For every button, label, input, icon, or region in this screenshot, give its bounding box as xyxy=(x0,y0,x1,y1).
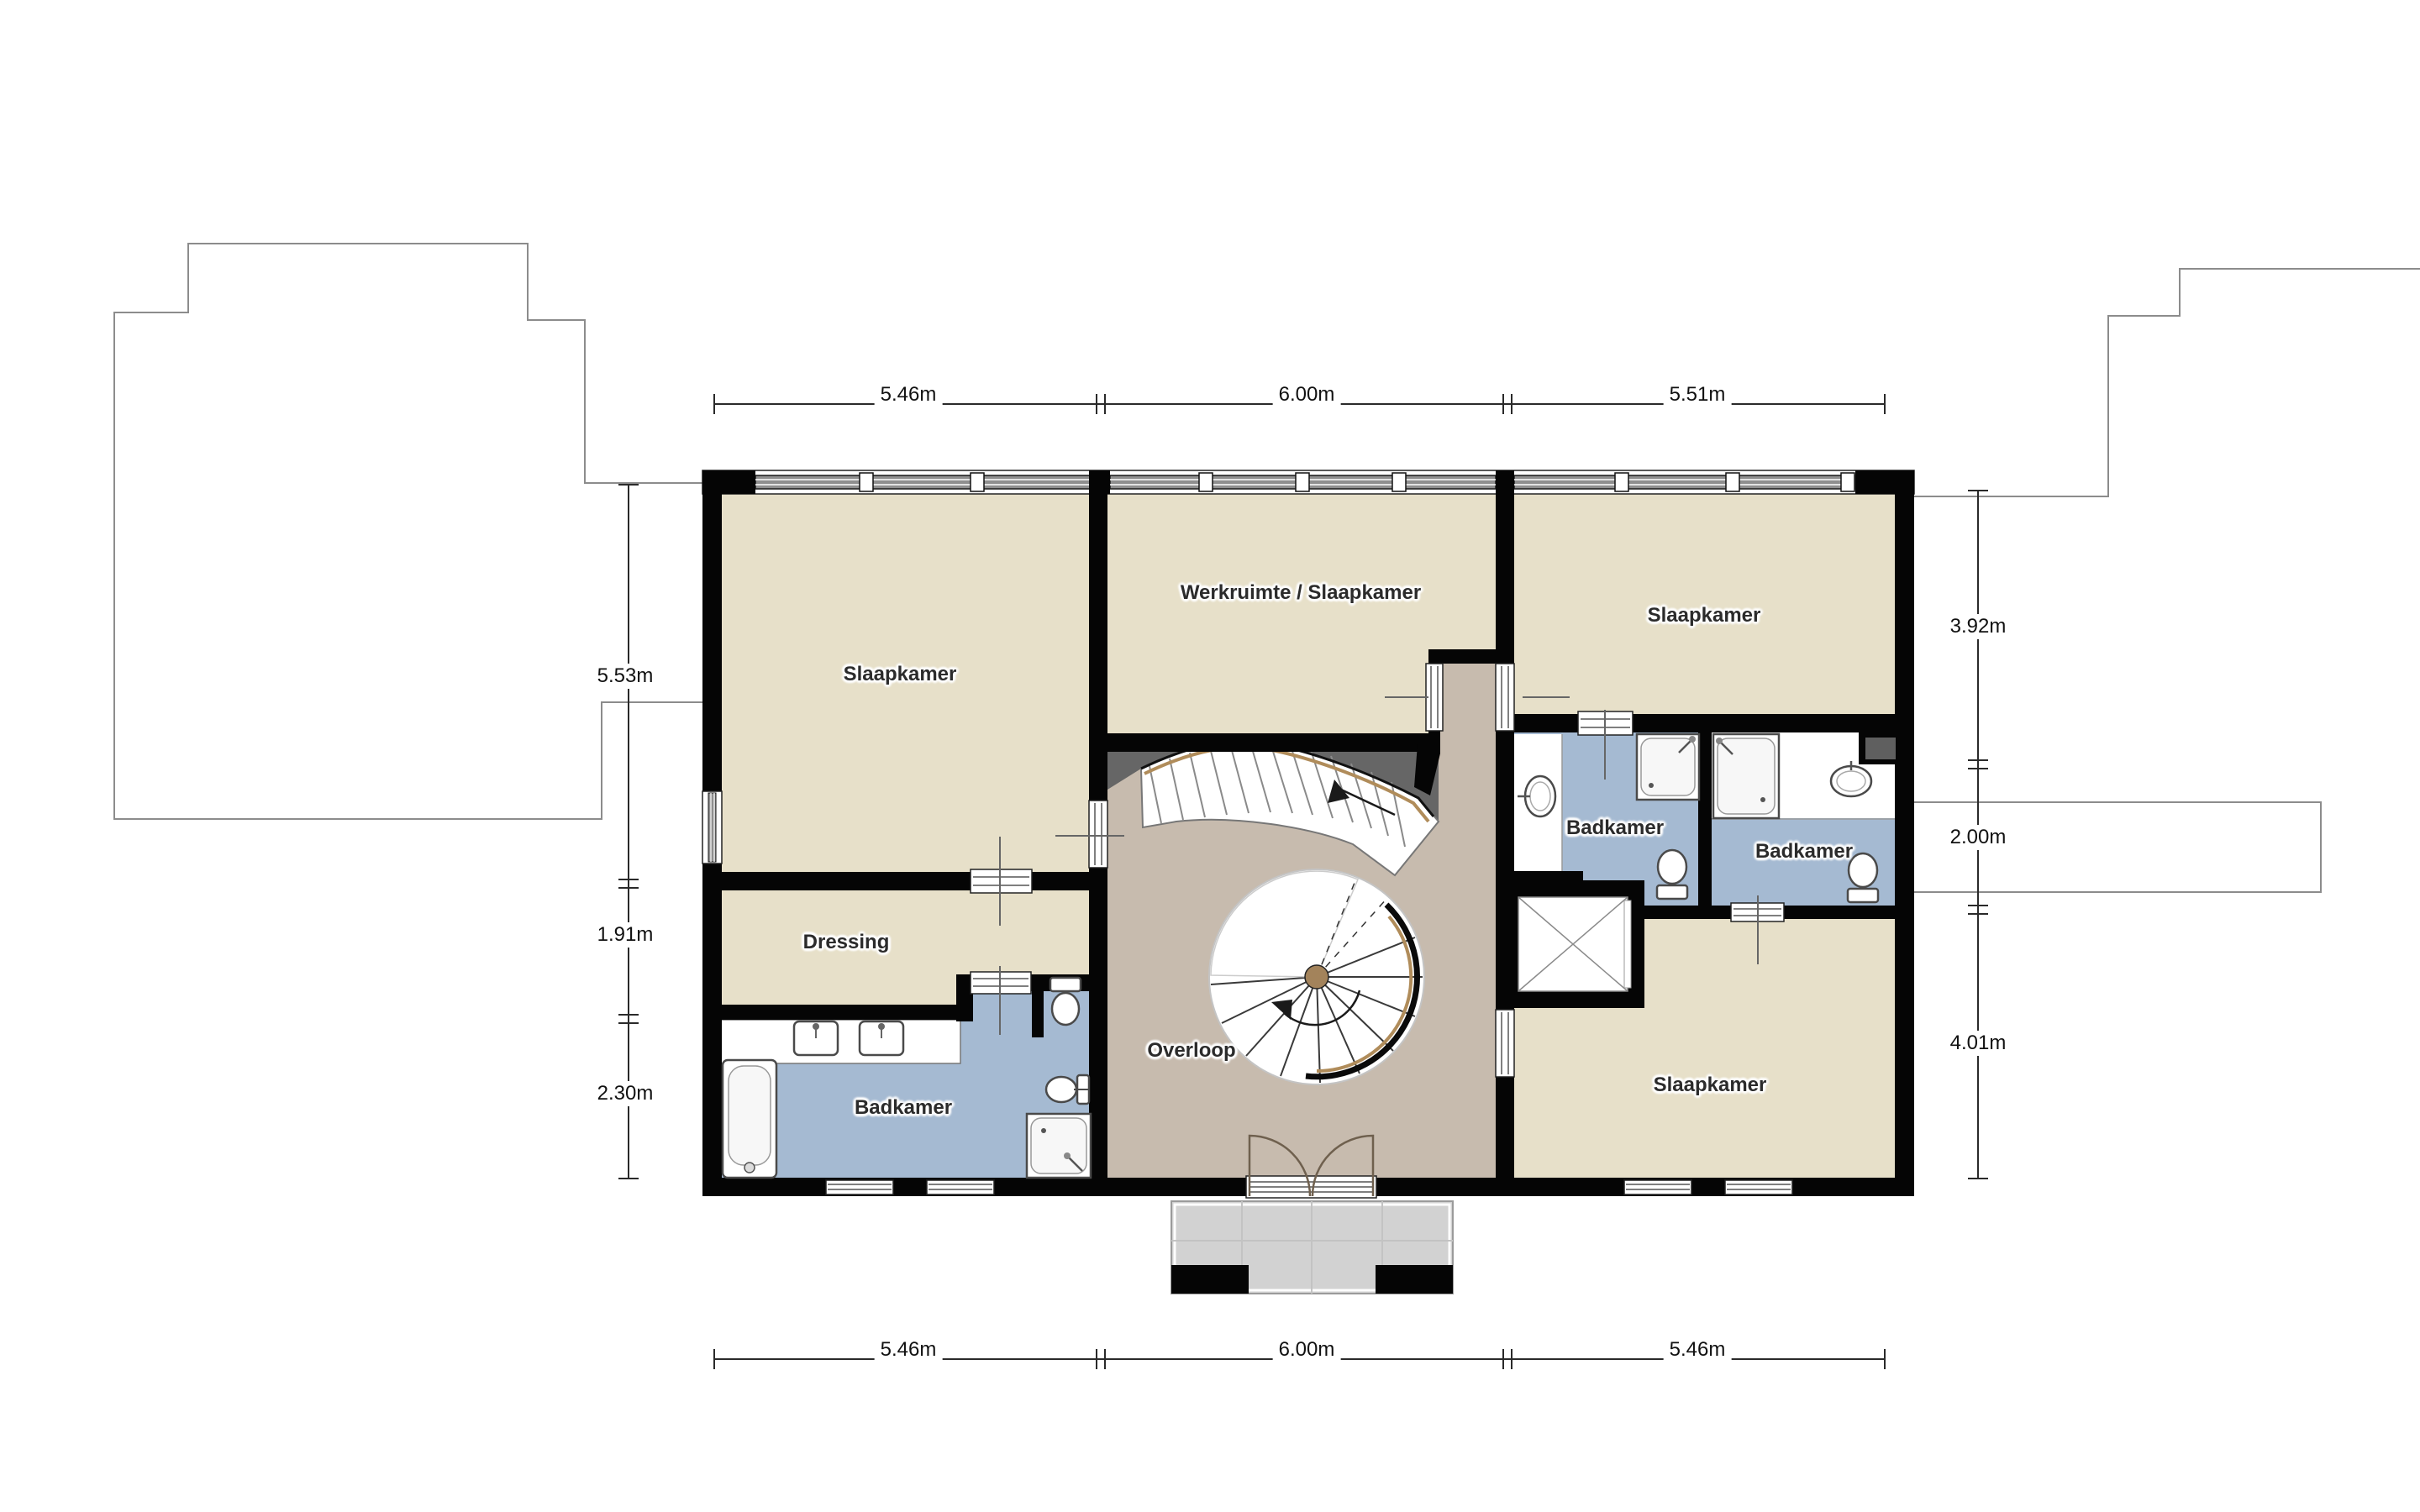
window-bottom-4 xyxy=(1725,1180,1792,1194)
window-band-top xyxy=(755,473,1854,491)
floor-plan-drawing xyxy=(0,0,2420,1512)
dim-left-3: 2.30m xyxy=(592,1081,660,1106)
dim-top-1: 5.46m xyxy=(875,382,943,407)
dim-left-1: 5.53m xyxy=(592,664,660,689)
stair-center-post xyxy=(1305,965,1328,989)
room-label-werkruimte: Werkruimte / Slaapkamer xyxy=(1181,581,1421,605)
dim-right-2: 2.00m xyxy=(1944,825,2012,850)
duct-shaft xyxy=(1865,738,1896,759)
bathtub-icon xyxy=(723,1060,776,1178)
window-left-wall xyxy=(702,791,722,864)
spiral-staircase xyxy=(1209,869,1424,1084)
sink-icon-left-1 xyxy=(794,1021,838,1055)
bidet-icon xyxy=(1046,1075,1089,1104)
vanity-counter xyxy=(721,1020,960,1063)
dim-right-3: 4.01m xyxy=(1944,1031,2012,1056)
room-label-badkamer-r2: Badkamer xyxy=(1755,840,1853,864)
dim-left-2: 1.91m xyxy=(592,922,660,948)
door-hall-bedroom-br xyxy=(1496,1010,1514,1077)
sink-icon-left-2 xyxy=(860,1021,903,1055)
window-bottom-2 xyxy=(927,1180,994,1194)
balcony xyxy=(1168,1196,1456,1294)
window-bottom-1 xyxy=(826,1180,893,1194)
room-label-badkamer-r1: Badkamer xyxy=(1566,816,1664,840)
dim-bottom-1: 5.46m xyxy=(875,1337,943,1362)
shower-icon-bath1 xyxy=(1637,734,1699,800)
room-label-slaapkamer-tr: Slaapkamer xyxy=(1648,604,1761,627)
dim-bottom-2: 6.00m xyxy=(1273,1337,1341,1362)
shower-icon-bath2 xyxy=(1713,734,1779,818)
room-label-slaapkamer-tl: Slaapkamer xyxy=(844,663,957,686)
room-label-badkamer-left: Badkamer xyxy=(855,1096,952,1120)
room-label-dressing: Dressing xyxy=(803,931,890,954)
floor-plan: Slaapkamer Werkruimte / Slaapkamer Slaap… xyxy=(0,0,2420,1512)
dim-top-2: 6.00m xyxy=(1273,382,1341,407)
room-label-overloop: Overloop xyxy=(1147,1039,1235,1063)
toilet-icon-left xyxy=(1050,978,1081,1025)
dim-left xyxy=(618,485,639,1179)
adjacent-floor-outline-right xyxy=(1914,269,2420,892)
elevator-shaft xyxy=(1502,880,1644,1008)
dim-right-1: 3.92m xyxy=(1944,614,2012,639)
adjacent-floor-outline-left xyxy=(114,244,702,819)
window-bottom-3 xyxy=(1624,1180,1691,1194)
dim-top-3: 5.51m xyxy=(1664,382,1732,407)
room-label-slaapkamer-br: Slaapkamer xyxy=(1654,1074,1767,1097)
toilet-icon-bath1 xyxy=(1657,850,1687,899)
dim-bottom-3: 5.46m xyxy=(1664,1337,1732,1362)
shower-icon-left xyxy=(1027,1114,1091,1178)
